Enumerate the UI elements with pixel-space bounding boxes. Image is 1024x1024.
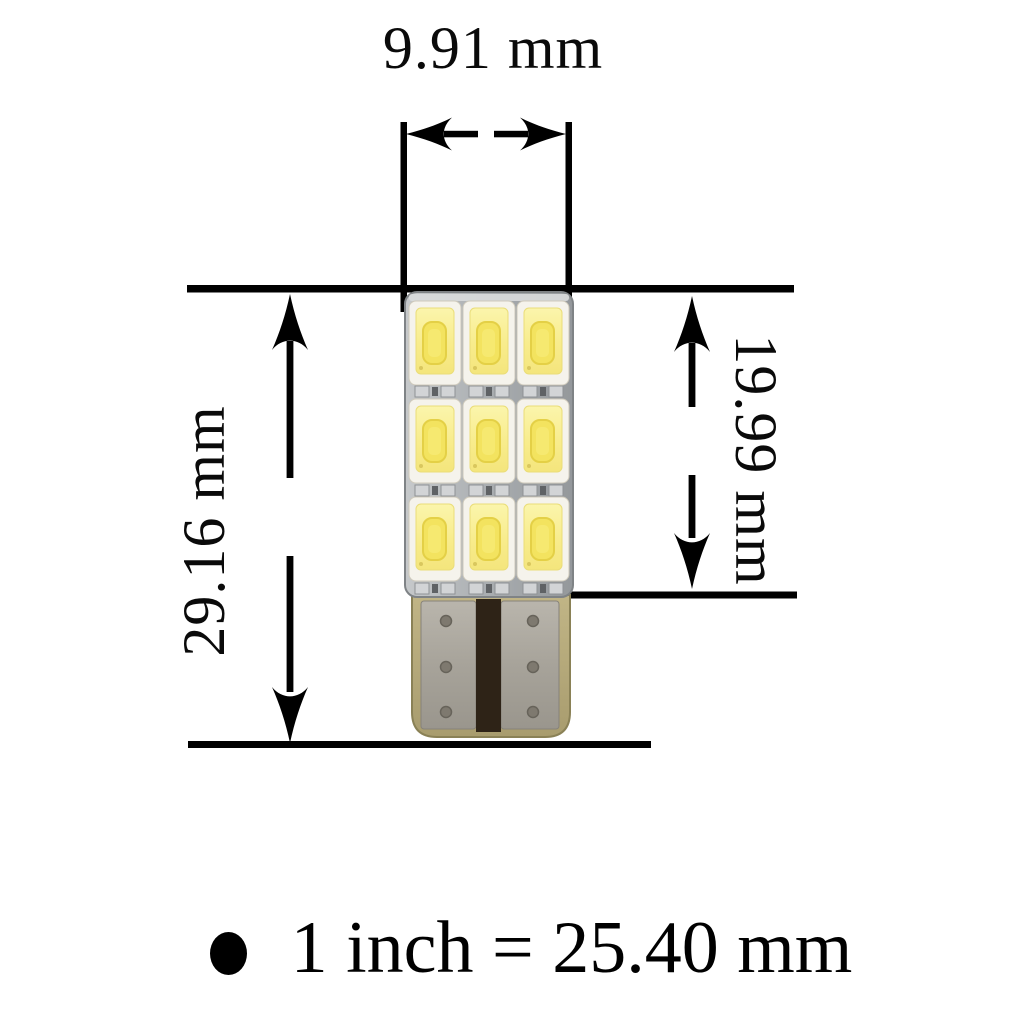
total-height-arrow-up: [272, 294, 308, 478]
bottom-reference-line: [188, 741, 651, 748]
led-bulb-dimension-diagram: [0, 0, 1024, 1024]
diagram-canvas: 9.91 mm 29.16 mm 19.99 mm 1 inch = 25.40…: [0, 0, 1024, 1024]
total-height-dimension-label: 29.16 mm: [172, 361, 236, 701]
scale-note-text: 1 inch = 25.40 mm: [291, 906, 853, 991]
width-arrow-right: [494, 118, 566, 151]
led-height-arrow-up: [674, 296, 710, 407]
width-extension-line-left: [401, 122, 408, 312]
total-height-arrow-down: [272, 556, 308, 743]
bullet-icon: [210, 932, 247, 975]
scale-note: 1 inch = 25.40 mm: [19, 902, 1024, 994]
led-bulb-illustration: [405, 292, 573, 737]
smd-led-grid: [409, 301, 569, 581]
led-height-dimension-label: 19.99 mm: [724, 290, 788, 630]
bulb-pcb-head: [405, 292, 573, 597]
led-height-arrow-down: [674, 475, 710, 589]
width-extension-line-right: [566, 122, 573, 312]
width-arrow-left: [406, 118, 478, 151]
bulb-wedge-base: [412, 595, 570, 737]
width-dimension-label: 9.91 mm: [293, 14, 693, 83]
